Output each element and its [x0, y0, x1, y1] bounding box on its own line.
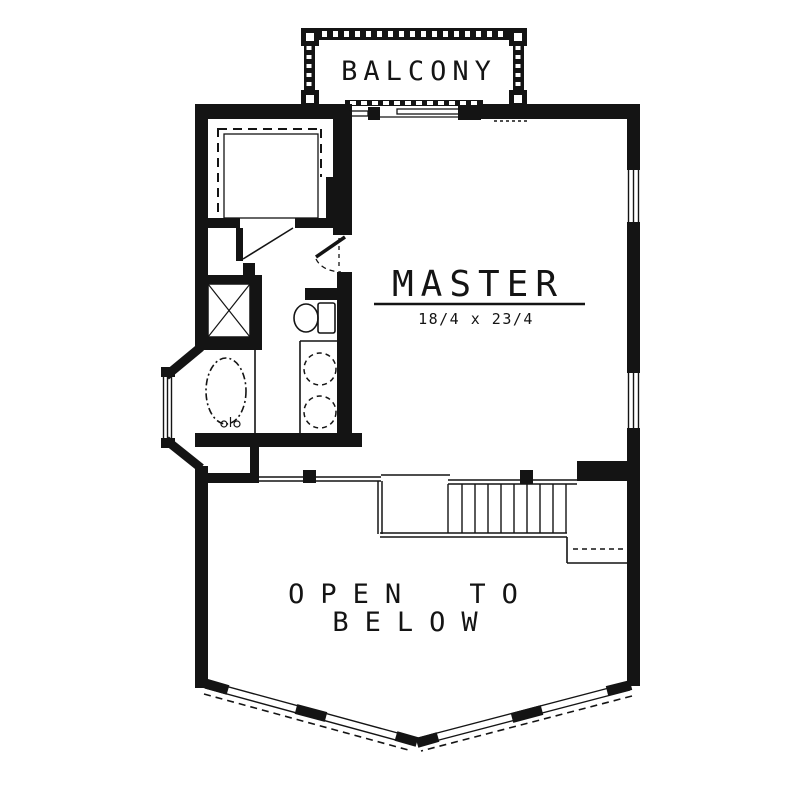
tub-basin: [206, 358, 246, 424]
wall-closet-south-b: [295, 218, 345, 228]
prow-window-wall: [204, 681, 632, 751]
room-label-open-to-below-line1: OPEN TO: [288, 579, 534, 610]
prow-sill-dashed: [421, 696, 632, 751]
room-dimensions-master: 18/4 x 23/4: [418, 310, 534, 328]
prow-wall-segment: [417, 737, 438, 743]
stair-landing: [567, 537, 627, 563]
balcony-post-center: [514, 95, 522, 103]
prow-wall-segment: [204, 683, 228, 690]
wall-left-upper: [195, 104, 208, 347]
prow-sill-dashed: [204, 694, 412, 751]
sliding-glass-door: [335, 105, 481, 120]
tub-faucet: [234, 421, 240, 427]
door-leaf: [316, 237, 345, 257]
door-swing-arc: [316, 259, 341, 272]
wall-right-2: [627, 222, 640, 373]
wall-shower-jamb: [243, 263, 255, 277]
toilet: [294, 303, 335, 333]
prow-wall-segment: [607, 685, 631, 691]
wall-top-right: [481, 104, 640, 119]
railing-post: [303, 470, 316, 483]
wall-closet-south-a: [208, 218, 240, 228]
garden-tub-bay: [161, 347, 255, 468]
door-panel: [350, 111, 368, 116]
walk-in-closet-shelves: [218, 128, 322, 228]
wall-master-south: [577, 461, 640, 481]
shelf-outline: [224, 134, 318, 218]
balcony-post-center: [306, 95, 314, 103]
stairs: [448, 470, 577, 533]
interior-walls: [195, 113, 362, 483]
sink-basin: [304, 353, 336, 385]
balcony-post-center: [514, 33, 522, 41]
wall-left-lower: [195, 466, 208, 688]
wall-bath-south: [195, 433, 362, 447]
prow-wall-segment: [512, 710, 542, 718]
window-right-upper: [627, 168, 640, 224]
room-label-master: MASTER: [392, 264, 564, 305]
toilet-tank: [318, 303, 335, 333]
door-leaf: [236, 228, 243, 261]
wall-shower-bottom: [195, 337, 262, 350]
balcony-post-center: [306, 33, 314, 41]
floorplan-canvas: BALCONY MASTER 18/4 x 23/4 OPEN TO BELOW: [0, 0, 800, 800]
door-jamb: [458, 106, 481, 120]
sink-basin: [304, 396, 336, 428]
toilet-bowl: [294, 304, 318, 332]
wall-top-left: [195, 104, 352, 119]
prow-wall-segment: [296, 709, 326, 717]
swing-door-closet: [236, 228, 293, 261]
window-right-lower: [627, 371, 640, 430]
stair-post: [520, 470, 533, 484]
room-label-balcony: BALCONY: [341, 56, 497, 87]
double-vanity-sinks: [300, 341, 337, 433]
wall-right-1: [627, 104, 640, 170]
door-jamb: [368, 107, 380, 120]
room-label-open-to-below-line2: BELOW: [332, 607, 493, 638]
wall-toilet-alcove: [305, 288, 352, 300]
door-panel: [397, 109, 460, 114]
door-swing: [243, 228, 293, 259]
floorplan-drawing: BALCONY MASTER 18/4 x 23/4 OPEN TO BELOW: [0, 0, 800, 800]
labels: BALCONY MASTER 18/4 x 23/4 OPEN TO BELOW: [288, 56, 585, 638]
swing-door-master-bath: [316, 237, 345, 272]
shower-stall: [208, 284, 250, 337]
wall-linen-bottom: [195, 473, 259, 483]
prow-wall-segment: [396, 736, 417, 742]
